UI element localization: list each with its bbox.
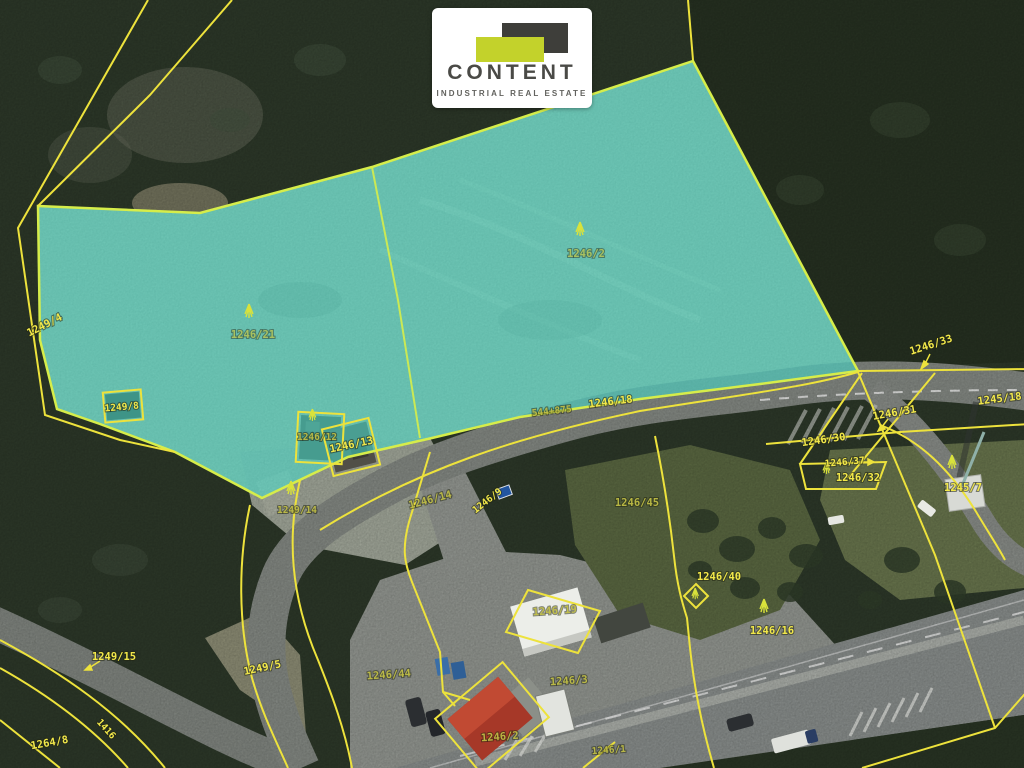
parcel-label: 1245/7 xyxy=(944,482,982,494)
parcel-label: 1249/14 xyxy=(277,505,317,516)
map-canvas[interactable]: 1249/4 1246/21 1246/2 1249/8 1246/12 124… xyxy=(0,0,1024,768)
parcel-label: 1246/45 xyxy=(615,497,659,509)
brand-logo: CONTENT INDUSTRIAL REAL ESTATE xyxy=(432,8,592,108)
brand-tagline: INDUSTRIAL REAL ESTATE xyxy=(432,89,592,98)
parcel-label: 1249/15 xyxy=(92,651,136,663)
parcel-label: 1246/32 xyxy=(836,472,880,484)
logo-green-rect xyxy=(476,37,544,62)
brand-name: CONTENT xyxy=(432,61,592,85)
brand-logo-mark-icon xyxy=(432,8,592,64)
parcel-label: 1246/21 xyxy=(231,329,275,341)
parcel-label: 1246/16 xyxy=(750,625,794,637)
aerial-map: 1249/4 1246/21 1246/2 1249/8 1246/12 124… xyxy=(0,0,1024,768)
parcel-label: 1246/12 xyxy=(297,432,337,443)
parcel-label: 1246/2 xyxy=(567,248,605,260)
parcel-label: 1246/40 xyxy=(697,571,741,583)
